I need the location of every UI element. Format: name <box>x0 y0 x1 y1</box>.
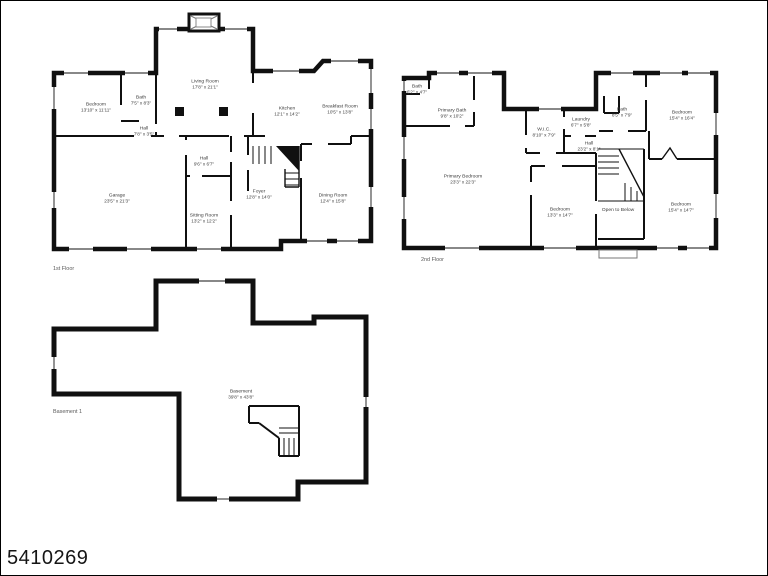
floorplan-canvas: Bedroom 13'10" x 11'11" Bath 7'5" x 8'3"… <box>0 0 768 576</box>
fireplace-icon <box>189 14 219 31</box>
porch-outline <box>599 250 637 258</box>
room-dims: 9'6" x 6'7" <box>194 161 214 167</box>
room-label-bedroom-1f: Bedroom 13'10" x 11'11" <box>81 101 111 113</box>
room-label-wic: W.I.C. 8'10" x 7'9" <box>533 126 556 138</box>
room-dims: 8'5" x 7'9" <box>612 112 632 118</box>
room-label-bath-2f: Bath 8'5" x 7'9" <box>612 106 632 118</box>
room-label-foyer: Foyer 12'8" x 14'0" <box>246 188 272 200</box>
room-label-garage: Garage 23'5" x 21'3" <box>104 192 130 204</box>
floor-label-second: 2nd Floor <box>421 256 444 262</box>
room-dims: 9'8" x 10'2" <box>438 113 467 119</box>
room-label-primary-bedroom: Primary Bedroom 23'3" x 22'3" <box>444 173 483 185</box>
room-label-hall-lower-1f: Hall 9'6" x 6'7" <box>194 155 214 167</box>
room-dims: 23'3" x 22'3" <box>444 179 483 185</box>
room-label-bath-small-2f: Bath 6'2" x 4'7" <box>407 83 427 95</box>
room-dims: 10'5" x 13'8" <box>322 109 358 115</box>
room-label-hall-upper-1f: Hall 7'8" x 3'5" <box>134 125 154 137</box>
basement-plan <box>51 277 370 503</box>
second-floor-plan <box>401 70 719 258</box>
column-icon <box>175 107 184 116</box>
room-dims: 13'3" x 14'7" <box>547 212 573 218</box>
room-label-dining-room: Dining Room 12'4" x 15'8" <box>319 192 348 204</box>
listing-id: 5410269 <box>7 547 88 570</box>
room-label-bedroom-bottom-middle: Bedroom 13'3" x 14'7" <box>547 206 573 218</box>
room-dims: 6'7" x 5'8" <box>571 122 591 128</box>
floor-label-basement: Basement 1 <box>53 408 82 414</box>
room-label-laundry: Laundry 6'7" x 5'8" <box>571 116 591 128</box>
floor-label-first: 1st Floor <box>53 265 74 271</box>
room-label-hall-2f: Hall 23'2" x 8'1" <box>578 140 601 152</box>
room-dims: 17'8" x 21'1" <box>191 84 219 90</box>
room-dims: 8'10" x 7'9" <box>533 132 556 138</box>
room-dims: 23'5" x 21'3" <box>104 198 130 204</box>
room-name: Open to Below <box>602 207 635 213</box>
floorplan-drawing <box>1 1 768 576</box>
room-dims: 15'4" x 14'7" <box>668 207 694 213</box>
room-dims: 13'2" x 12'2" <box>190 218 218 224</box>
room-label-sitting-room: Sitting Room 13'2" x 12'2" <box>190 212 218 224</box>
room-dims: 15'4" x 16'4" <box>669 115 695 121</box>
room-label-primary-bath: Primary Bath 9'8" x 10'2" <box>438 107 467 119</box>
room-label-living-room: Living Room 17'8" x 21'1" <box>191 78 219 90</box>
room-label-bedroom-top-right: Bedroom 15'4" x 16'4" <box>669 109 695 121</box>
column-icon <box>219 107 228 116</box>
room-dims: 13'10" x 11'11" <box>81 107 111 113</box>
room-label-breakfast-room: Breakfast Room 10'5" x 13'8" <box>322 103 358 115</box>
room-label-bedroom-bottom-right: Bedroom 15'4" x 14'7" <box>668 201 694 213</box>
room-dims: 7'5" x 8'3" <box>131 100 151 106</box>
room-label-kitchen: Kitchen 12'1" x 14'2" <box>274 105 300 117</box>
room-dims: 12'4" x 15'8" <box>319 198 348 204</box>
room-label-basement: Basement 39'8" x 43'8" <box>228 388 254 400</box>
room-dims: 12'8" x 14'0" <box>246 194 272 200</box>
room-dims: 6'2" x 4'7" <box>407 89 427 95</box>
room-label-open-to-below: Open to Below <box>602 207 635 213</box>
room-dims: 23'2" x 8'1" <box>578 146 601 152</box>
room-dims: 39'8" x 43'8" <box>228 394 254 400</box>
room-dims: 7'8" x 3'5" <box>134 131 154 137</box>
room-dims: 12'1" x 14'2" <box>274 111 300 117</box>
room-label-bath-1f: Bath 7'5" x 8'3" <box>131 94 151 106</box>
